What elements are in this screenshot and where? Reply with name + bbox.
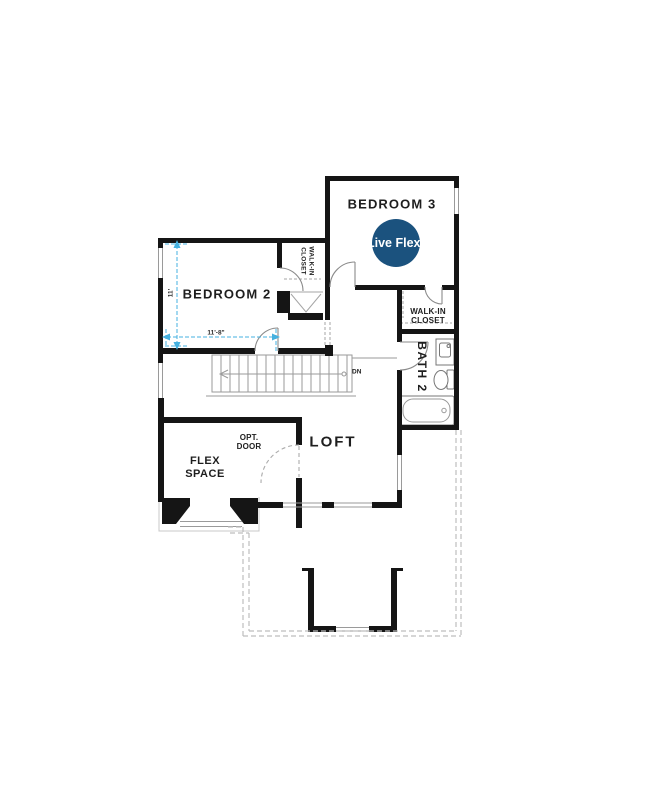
bedroom2-depth-dimension: 11' [168, 287, 175, 299]
trademark-symbol: ™ [421, 238, 426, 243]
toilet-bowl-icon [434, 371, 448, 390]
sink-faucet-icon [447, 345, 450, 348]
window [398, 455, 402, 490]
bedroom2-width-dimension: 11'-8" [205, 330, 226, 337]
bathtub-drain-icon [442, 408, 446, 412]
floor-plan: BEDROOM 3 Live Flex™ BEDROOM 2 WALK-IN C… [0, 0, 672, 800]
bath2-label: BATH 2 [415, 341, 429, 392]
window [180, 522, 242, 527]
bifold-door-icon [291, 294, 321, 312]
live-flex-badge: Live Flex™ [367, 235, 425, 249]
bedroom3-closet-door-icon [425, 287, 442, 304]
bedroom2-walkin-closet-label: WALK-IN CLOSET [300, 246, 315, 275]
opt-door-label: OPT. DOOR [237, 433, 262, 451]
window [159, 363, 163, 398]
badge-line1: Live [367, 236, 392, 250]
floor-plan-drawing [0, 0, 672, 800]
patio-walls [302, 568, 403, 632]
bedroom3-door-icon [330, 262, 355, 287]
badge-line2: Flex™ [395, 236, 425, 250]
bedroom2-label: BEDROOM 2 [183, 287, 272, 302]
flex-space-label: FLEX SPACE [185, 455, 225, 481]
bedroom3-walkin-closet-label: WALK-IN CLOSET [410, 307, 446, 325]
bay-wall-right [230, 498, 258, 524]
roof-outline [228, 430, 461, 636]
stairs-down-label: DN [352, 369, 361, 376]
optional-door-icon [261, 445, 299, 483]
bay-wall-left [162, 498, 190, 524]
window [159, 248, 163, 278]
loft-label: LOFT [309, 434, 356, 451]
window [334, 503, 372, 507]
stairs [206, 355, 397, 396]
window [283, 503, 322, 507]
bedroom3-label: BEDROOM 3 [348, 197, 437, 212]
bedroom2-door-icon [255, 328, 278, 351]
window [455, 188, 459, 214]
